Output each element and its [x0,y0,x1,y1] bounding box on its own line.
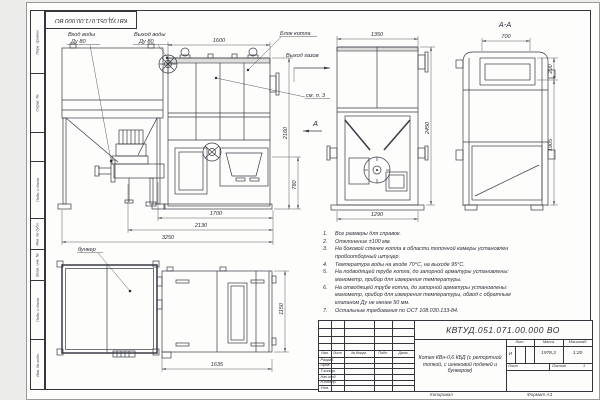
dim-plan-width: 1150 [279,302,285,315]
title-block: Изм. Лист № докум. Подп. Дата Разраб. Пр… [318,320,593,392]
row-tkontr: Т.контр. [321,369,336,373]
dim-rear-width: 1350 [371,32,384,38]
bunker-label: бункер [78,247,96,253]
product-name: Котел КВн-0,6 КБД (с ретортной топкой, с… [415,340,505,390]
plan-view-dimensions: 1635 1150 [162,271,289,372]
dim-rear-height: 2450 [425,121,431,135]
section-aa-label: А-А [498,20,512,29]
mass-value: 1978,3 [534,351,563,356]
note-item: 1.Все размеры для справок. [323,231,519,239]
sheets-value: 1 [583,364,585,368]
side-view [58,44,165,209]
plan-view: бункер [57,247,276,358]
note-item: 3.На боковой стенке котла в области топо… [323,246,519,261]
footer-copied: Копировал [430,392,453,397]
section-view-dimensions: 700 200 1905 [482,34,558,205]
scale-value: 1:20 [563,351,592,356]
note-item: 6.На отводящей трубе котла, до запорной … [323,285,519,308]
dim-section-body: 1905 [548,138,554,151]
col-podp: Подп. [374,351,392,355]
water-outlet-dn: Ду 80 [138,39,154,45]
lit-header: Лит. [506,340,534,344]
col-izm: Изм. [319,351,331,355]
dim-front-width: 1600 [213,38,226,44]
dim-front-height: 2160 [283,126,289,140]
front-view [159,48,279,209]
front-view-callouts: Блок котла Выход газов см. п. 3 А [215,31,330,131]
front-view-dimensions: 1600 2160 780 1700 2130 3250 [62,38,301,245]
row-razrab: Разраб. [321,358,335,362]
boiler-block-label: Блок котла [280,31,311,37]
note-item: 5.На подводящей трубе котла, до запорной… [323,269,519,284]
dim-conveyor-height: 780 [292,179,298,189]
dim-rear-base: 1290 [371,212,384,218]
dim-section-top: 200 [548,63,554,74]
dim-section-width: 700 [501,34,511,40]
dim-2130: 2130 [194,223,208,229]
row-nachotd: Нач.отд. [321,375,337,379]
pipe-labels: Вход воды Ду 80 Выход воды Ду 80 [67,32,170,162]
col-list: Лист [331,351,344,355]
sheet-label: Лист [508,364,518,368]
title-doc-number: КВТУД.051.071.00.000 ВО [414,321,592,339]
water-inlet-label: Вход воды [68,32,95,38]
water-outlet-label: Выход воды [134,32,165,38]
scale-header: Масштаб [563,340,592,344]
note-item: 7.Остальные требования по ОСТ 108.030.13… [323,308,519,316]
technical-notes: 1.Все размеры для справок. 2.Отклонение … [323,231,519,315]
row-nkontr: Н.контр. [321,380,337,384]
col-data: Дата [392,351,414,355]
see-note-label: см. п. 3 [306,93,326,99]
water-inlet-dn: Ду 80 [70,39,86,45]
row-prov: Пров. [321,363,331,367]
dim-1700: 1700 [210,211,223,217]
dim-3250: 3250 [162,235,175,241]
lit-value: И [506,351,515,356]
col-docnum: № докум. [344,351,374,355]
view-a-label: А [312,119,318,128]
sheets-label: Листов [552,364,566,368]
dim-plan-length: 1635 [211,362,224,368]
row-utv: Утв. [321,386,330,390]
footer-format: Формат А3 [527,392,552,397]
mass-header: Масса [534,340,563,344]
rear-view [327,47,428,210]
section-view: А-А [456,20,555,210]
